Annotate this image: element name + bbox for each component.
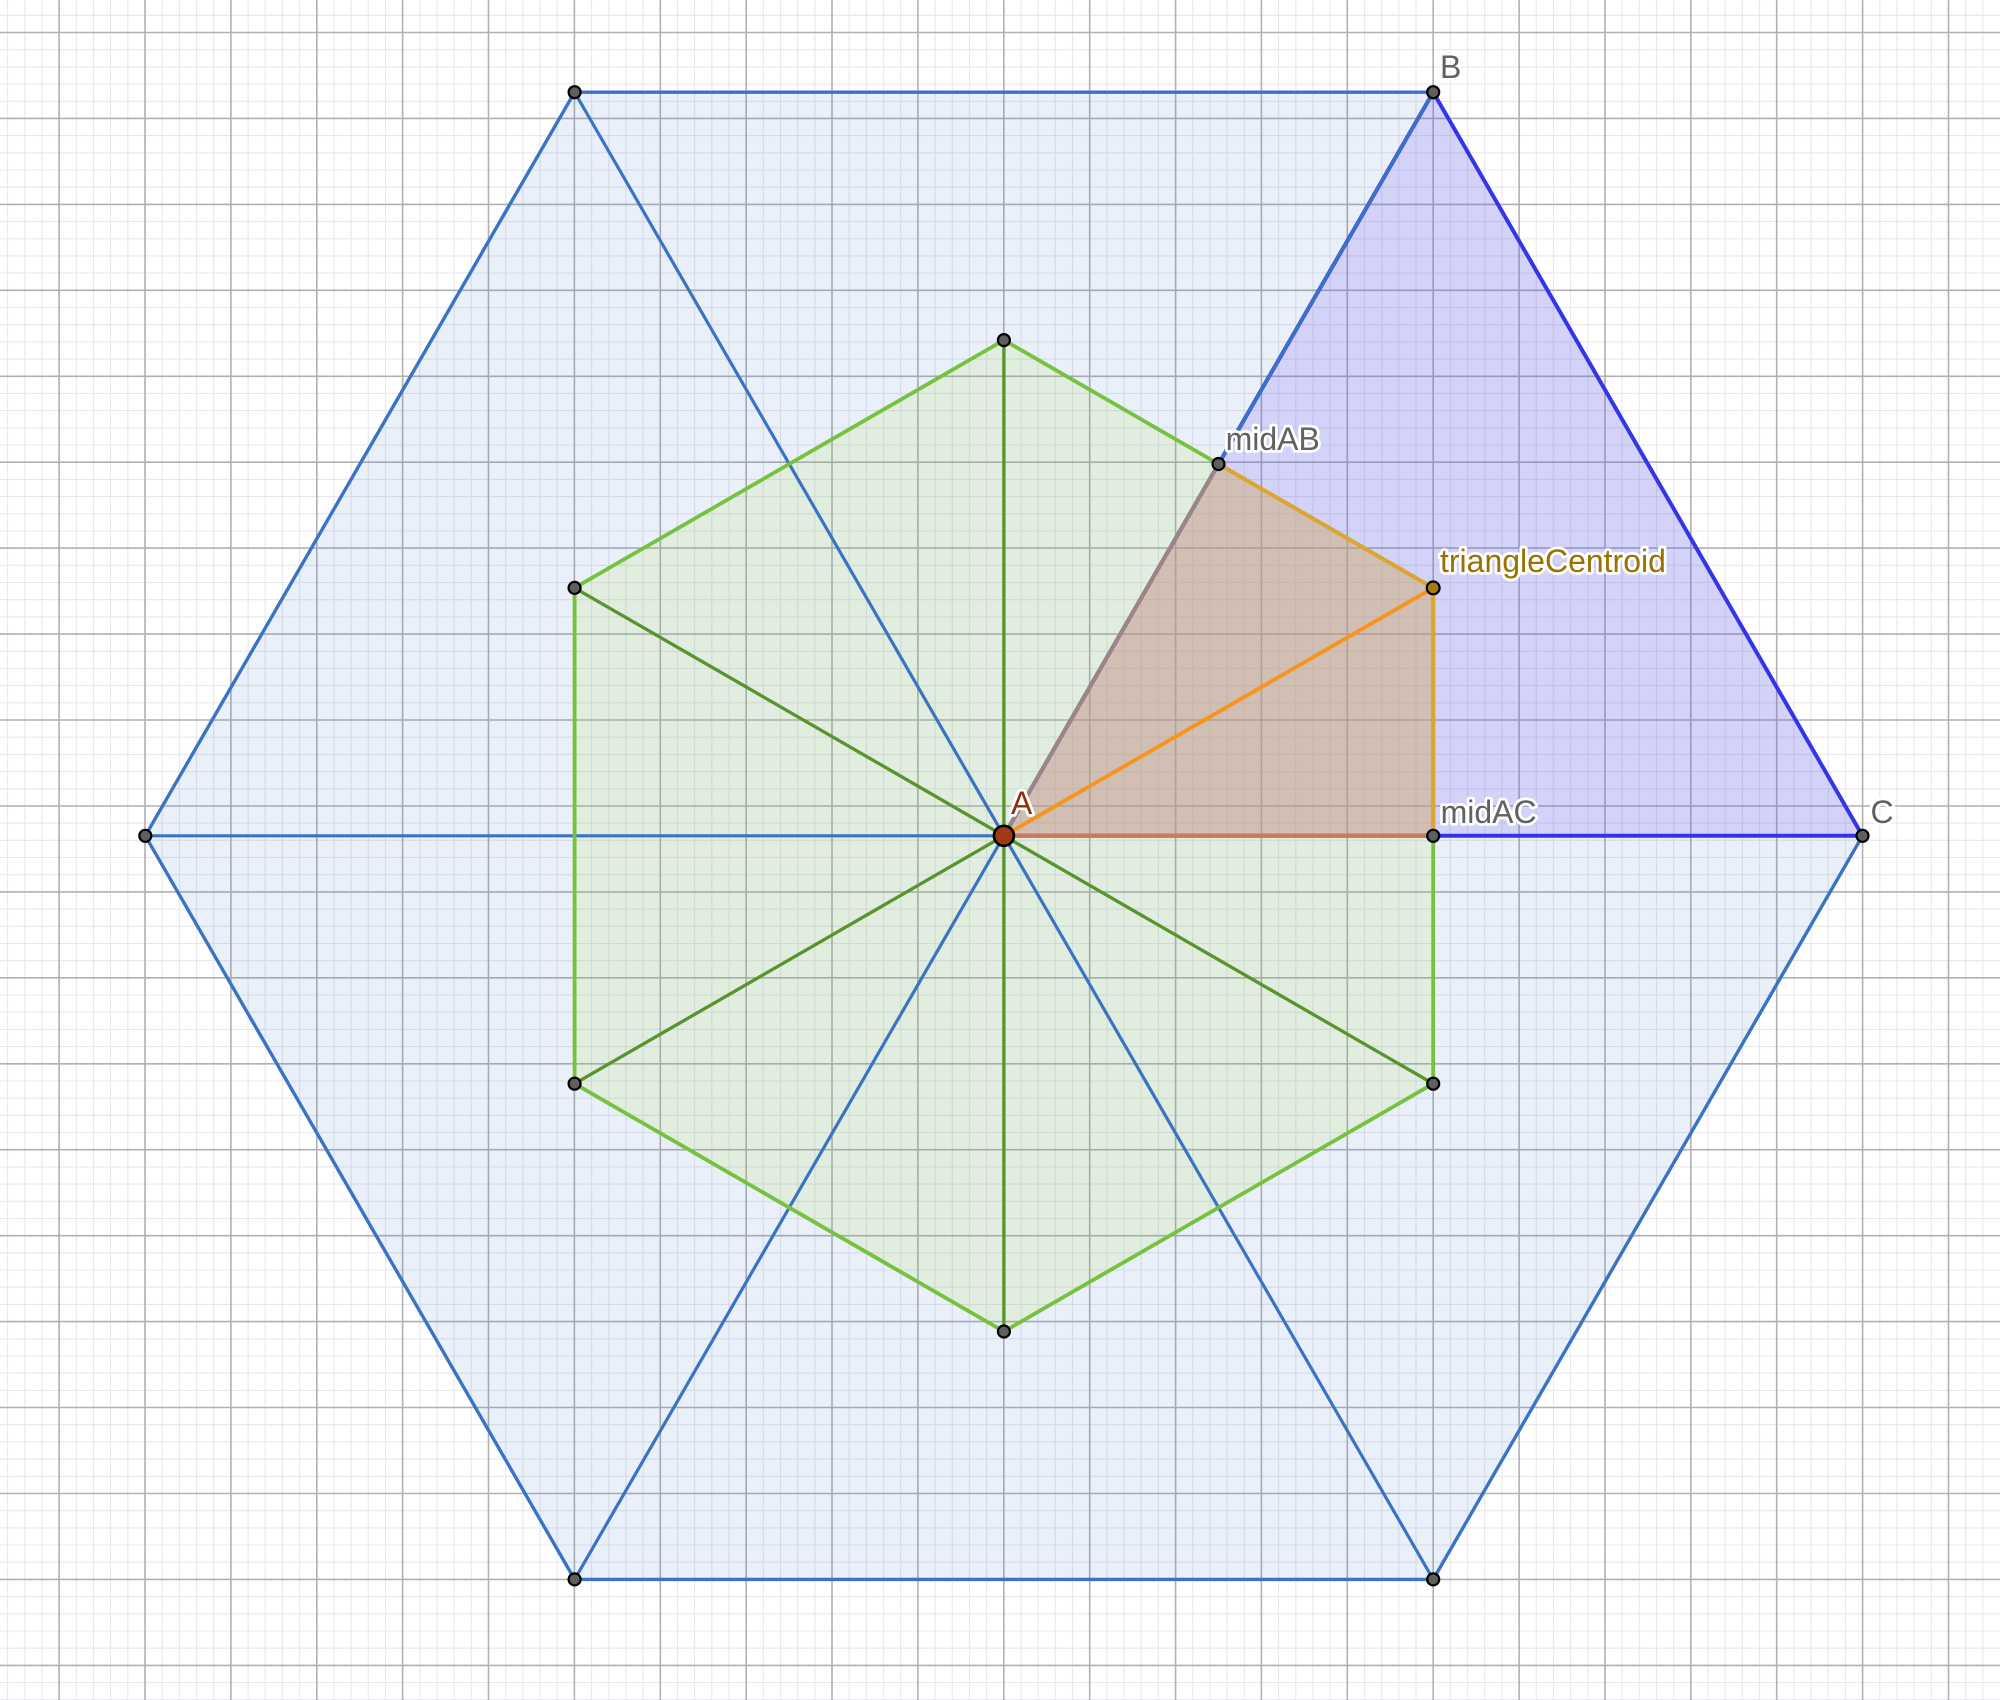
svg-text:midAB: midAB xyxy=(1226,421,1320,457)
svg-text:B: B xyxy=(1440,49,1461,85)
svg-text:midAC: midAC xyxy=(1441,794,1537,830)
svg-text:triangleCentroid: triangleCentroid xyxy=(1440,543,1666,579)
svg-text:A: A xyxy=(1011,785,1033,821)
svg-text:C: C xyxy=(1871,794,1894,830)
